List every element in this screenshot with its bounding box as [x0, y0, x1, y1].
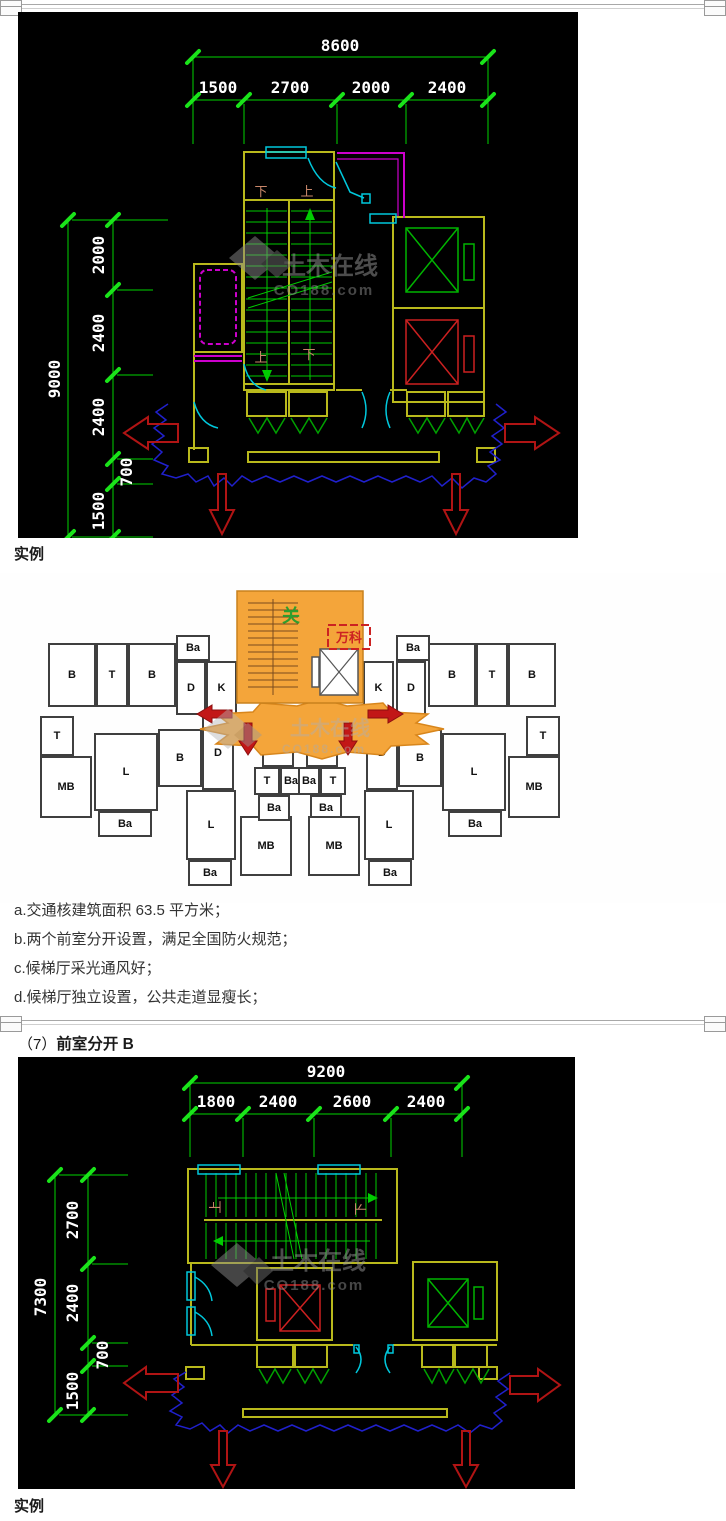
dim-segment: 2700 [63, 1201, 82, 1240]
cad1-elevator-red [406, 320, 474, 384]
cad2-elevator-green [428, 1279, 483, 1327]
dim-segment: 2400 [428, 78, 467, 97]
section-heading: （7）前室分开 B [18, 1032, 134, 1054]
exit-arrow-left [124, 417, 178, 449]
notes-list: a.交通核建筑面积 63.5 平方米； b.两个前室分开设置，满足全国防火规范；… [14, 902, 704, 1018]
dim-segment: 700 [117, 458, 136, 487]
cad1-route [124, 404, 559, 534]
stair-direction-label: 上 [254, 350, 267, 365]
cad1-watermark: 土木在线 CO188.com [229, 236, 378, 299]
watermark-brand: 土木在线 [282, 252, 378, 280]
watermark-site: CO188.com [264, 1277, 365, 1294]
exit-arrow-left [124, 1367, 178, 1399]
cad2-watermark: 土木在线 CO188.com [211, 1243, 366, 1294]
dim-total: 7300 [31, 1278, 50, 1317]
brand-annotation: 万科 [335, 630, 362, 645]
cad2-top-dimensions: 9200 1800 2400 2600 2400 [184, 1062, 468, 1157]
page: 8600 1500 2700 2000 2400 9000 [0, 0, 726, 1521]
stair-direction-label: 下 [353, 1202, 368, 1215]
dim-segment: 2400 [407, 1092, 446, 1111]
stair-direction-label: 上 [300, 184, 313, 199]
section-heading-index: （7） [18, 1036, 56, 1053]
cad1-walls [189, 152, 495, 462]
cad1-threshold-hatches [249, 418, 484, 433]
watermark-brand: 土木在线 [290, 716, 370, 740]
cad-image-1: 8600 1500 2700 2000 2400 9000 [18, 12, 578, 538]
dim-segment: 2400 [259, 1092, 298, 1111]
exit-arrow-right [510, 1369, 560, 1401]
cad2-route [124, 1367, 560, 1487]
note-line: b.两个前室分开设置，满足全国防火规范； [14, 931, 704, 948]
dim-segment: 700 [93, 1341, 112, 1370]
watermark-site: CO188.com [282, 742, 366, 756]
cad2-stair: 上 下 [206, 1173, 378, 1259]
dim-segment: 2000 [89, 236, 108, 275]
watermark-site: CO188.com [274, 282, 375, 299]
dim-total: 8600 [321, 36, 360, 55]
dim-total: 9000 [45, 360, 64, 399]
dim-segment: 2400 [89, 398, 108, 437]
exit-arrow-right [505, 417, 559, 449]
handwritten-annotation: 关 [282, 605, 300, 626]
exit-arrow-down [211, 1431, 235, 1487]
example-caption: 实例 [14, 543, 44, 564]
stair-direction-label: 下 [302, 347, 315, 362]
cad2-left-dimensions: 7300 2700 2400 700 1500 [31, 1169, 128, 1421]
cad2-threshold-hatches [259, 1369, 489, 1383]
cad-image-2: 9200 1800 2400 2600 2400 7300 [18, 1057, 575, 1489]
dim-segment: 2400 [89, 314, 108, 353]
section-break [0, 1016, 726, 1030]
dim-segment: 2700 [271, 78, 310, 97]
dim-segment: 1500 [63, 1372, 82, 1411]
note-line: a.交通核建筑面积 63.5 平方米； [14, 902, 704, 919]
note-line: d.候梯厅独立设置，公共走道显瘦长； [14, 989, 704, 1006]
dim-segment: 1500 [89, 492, 108, 531]
dim-segment: 2600 [333, 1092, 372, 1111]
dim-segment: 2000 [352, 78, 391, 97]
dim-segment: 2400 [63, 1284, 82, 1323]
exit-arrow-down [454, 1431, 478, 1487]
stair-direction-label: 下 [254, 184, 267, 199]
floorplan-image: B T B Ba D K K Ba D B T B [0, 573, 726, 903]
exit-arrow-down [210, 474, 234, 534]
stair-direction-label: 上 [208, 1200, 223, 1213]
dim-segment: 1800 [197, 1092, 236, 1111]
section-break-line [0, 1020, 726, 1025]
section-heading-title: 前室分开 B [56, 1036, 134, 1053]
cad1-left-dimensions: 9000 2000 2400 2400 700 1500 [45, 214, 168, 538]
note-line: c.候梯厅采光通风好； [14, 960, 704, 977]
example-caption: 实例 [14, 1495, 44, 1516]
dim-segment: 1500 [199, 78, 238, 97]
cad1-top-dimensions: 8600 1500 2700 2000 2400 [187, 36, 494, 144]
section-break-line [0, 4, 726, 9]
watermark-brand: 土木在线 [270, 1247, 366, 1275]
cad1-elevator-green [406, 228, 474, 292]
dim-total: 9200 [307, 1062, 346, 1081]
